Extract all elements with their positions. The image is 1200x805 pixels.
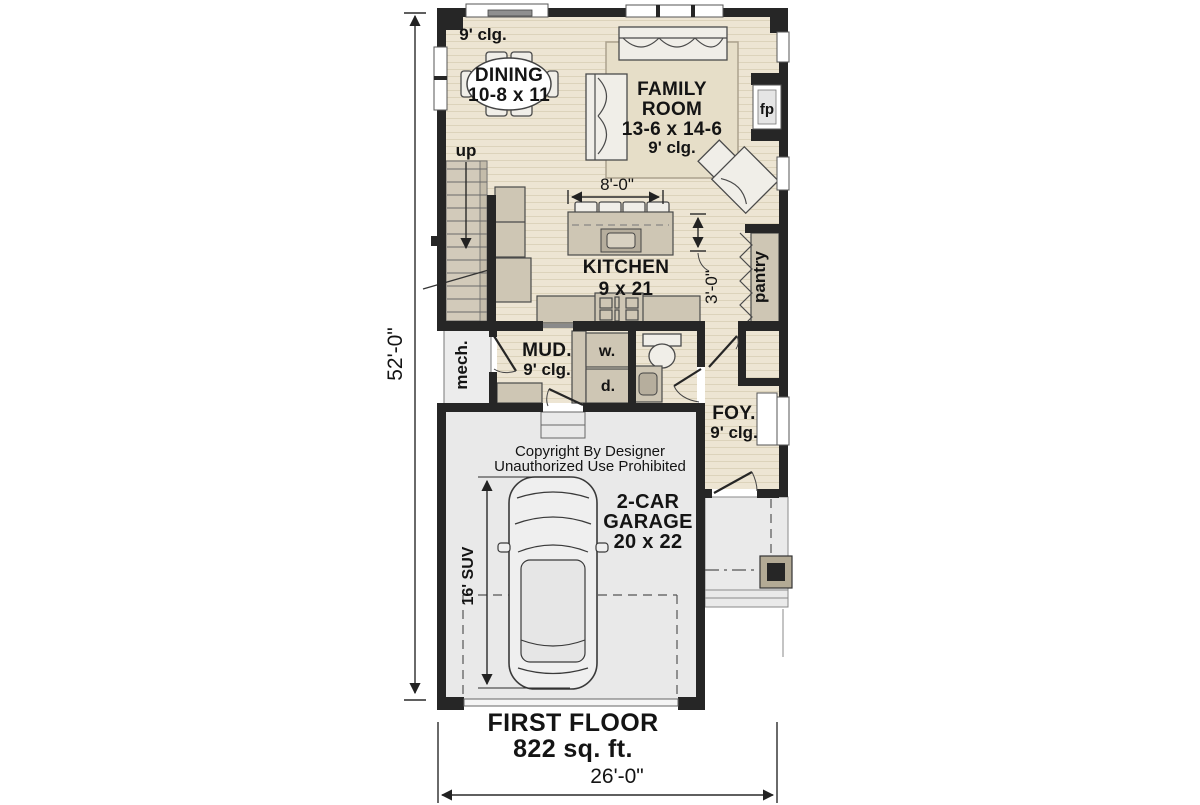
dining-room-label: DINING [475,65,543,86]
garage-steps [541,412,585,438]
suv-mirror [498,543,510,552]
foyer-label: FOY. [712,403,755,424]
mud-bench [497,383,542,403]
window [777,157,789,190]
family-room-label-1: FAMILY [637,79,707,100]
sofa [619,27,727,60]
garage-label-2: GARAGE [603,511,693,533]
pantry-label: pantry [750,250,769,303]
window-mullion [691,5,695,17]
corner-block [437,697,464,710]
window [777,397,789,445]
floor-plan-drawing: 9' clg. DINING 10-8 x 11 FAMILY ROOM 13-… [0,0,1200,805]
garage-label-1: 2-CAR [617,491,680,513]
garage-door [464,699,678,706]
foyer-niche [757,393,777,445]
window [777,32,789,62]
mud-room-ceiling: 9' clg. [523,360,571,379]
toilet-bowl [649,344,675,368]
overall-depth-dimension [404,13,426,700]
refrigerator [493,258,531,302]
foyer-ceiling: 9' clg. [710,423,758,442]
loveseat [586,74,627,160]
garage-size: 20 x 22 [614,531,683,553]
family-room-size: 13-6 x 14-6 [622,119,722,140]
dryer-label: d. [601,378,615,395]
plan-title: FIRST FLOOR [487,709,658,737]
fireplace-label: fp [760,101,774,118]
family-room-label-2: ROOM [642,99,702,120]
plan-area: 822 sq. ft. [513,735,633,763]
stool [599,202,621,213]
family-room-ceiling: 9' clg. [648,138,696,157]
mud-room-label: MUD. [522,340,572,361]
kitchen-clearance-label: 8'-0" [600,175,634,194]
stairs-up-label: up [456,141,477,160]
kitchen-size: 9 x 21 [599,279,654,300]
overall-width-label: 26'-0" [590,765,644,788]
overall-depth-label: 52'-0" [384,327,407,381]
pantry-walkway-label: 3'-0" [702,270,721,304]
window-sill [488,10,532,16]
dining-ceiling-label: 9' clg. [459,25,507,44]
corner-block [678,697,705,710]
suv-length-label: 16' SUV [460,546,477,605]
kitchen-label: KITCHEN [583,257,670,278]
stool [575,202,597,213]
stairs [446,161,487,321]
washer-label: w. [598,343,615,360]
suv-top-view [498,477,608,689]
porch-post-core [767,563,785,581]
kitchen-island [568,202,673,255]
suv-mirror [596,543,608,552]
copyright-line-2: Unauthorized Use Prohibited [494,458,686,475]
window-mullion [656,5,660,17]
window-mullion [434,76,447,80]
stool [647,202,669,213]
mech-label: mech. [452,340,471,389]
stool [623,202,645,213]
cased-opening-header [543,324,573,328]
floor-plan-page: 9' clg. DINING 10-8 x 11 FAMILY ROOM 13-… [0,0,1200,805]
bath-sink [639,373,657,395]
dining-room-size: 10-8 x 11 [468,85,550,106]
window [626,5,723,17]
